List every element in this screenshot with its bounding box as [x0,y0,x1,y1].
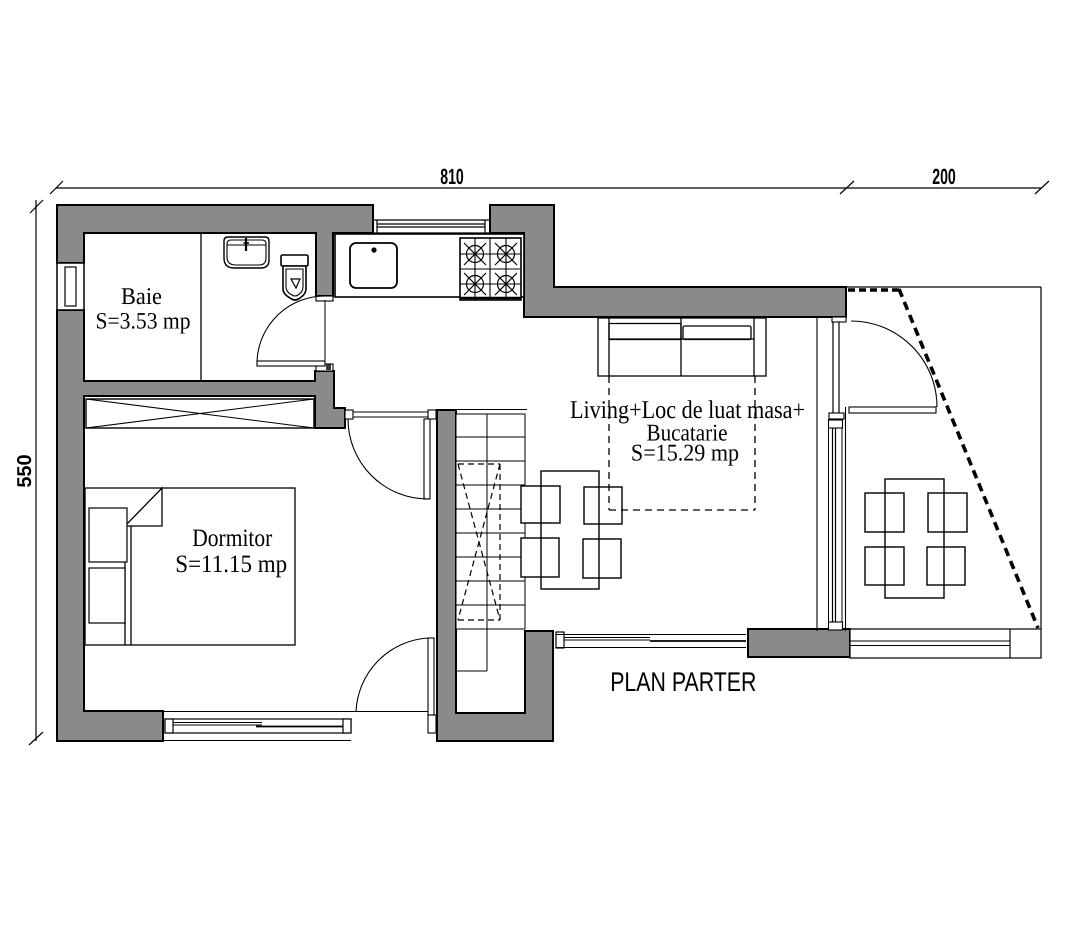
svg-text:S=15.29 mp: S=15.29 mp [631,441,739,467]
svg-text:810: 810 [440,164,464,189]
svg-text:Baie: Baie [121,284,162,310]
svg-text:PLAN PARTER: PLAN PARTER [610,667,756,697]
svg-text:S=11.15 mp: S=11.15 mp [175,551,287,578]
svg-text:200: 200 [932,164,956,189]
svg-text:Dormitor: Dormitor [192,525,273,552]
svg-text:S=3.53 mp: S=3.53 mp [95,309,190,335]
svg-text:550: 550 [14,454,36,487]
